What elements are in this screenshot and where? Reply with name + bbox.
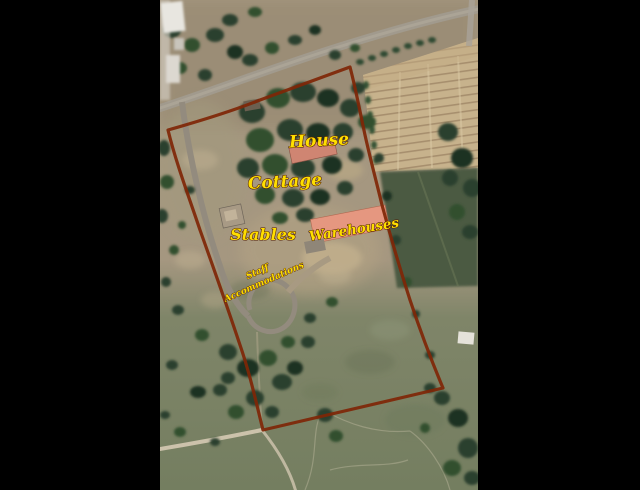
satellite-photo: House Cottage Stables Warehouses Staff A… (160, 0, 478, 490)
label-stables: Stables (230, 225, 296, 244)
label-cottage: Cottage (247, 170, 322, 194)
screenshot-stage: House Cottage Stables Warehouses Staff A… (0, 0, 640, 490)
white-building-right (458, 331, 475, 344)
aerial-map-svg: House Cottage Stables Warehouses Staff A… (160, 0, 478, 490)
road-top-right (469, 0, 472, 46)
label-house: House (287, 129, 349, 152)
